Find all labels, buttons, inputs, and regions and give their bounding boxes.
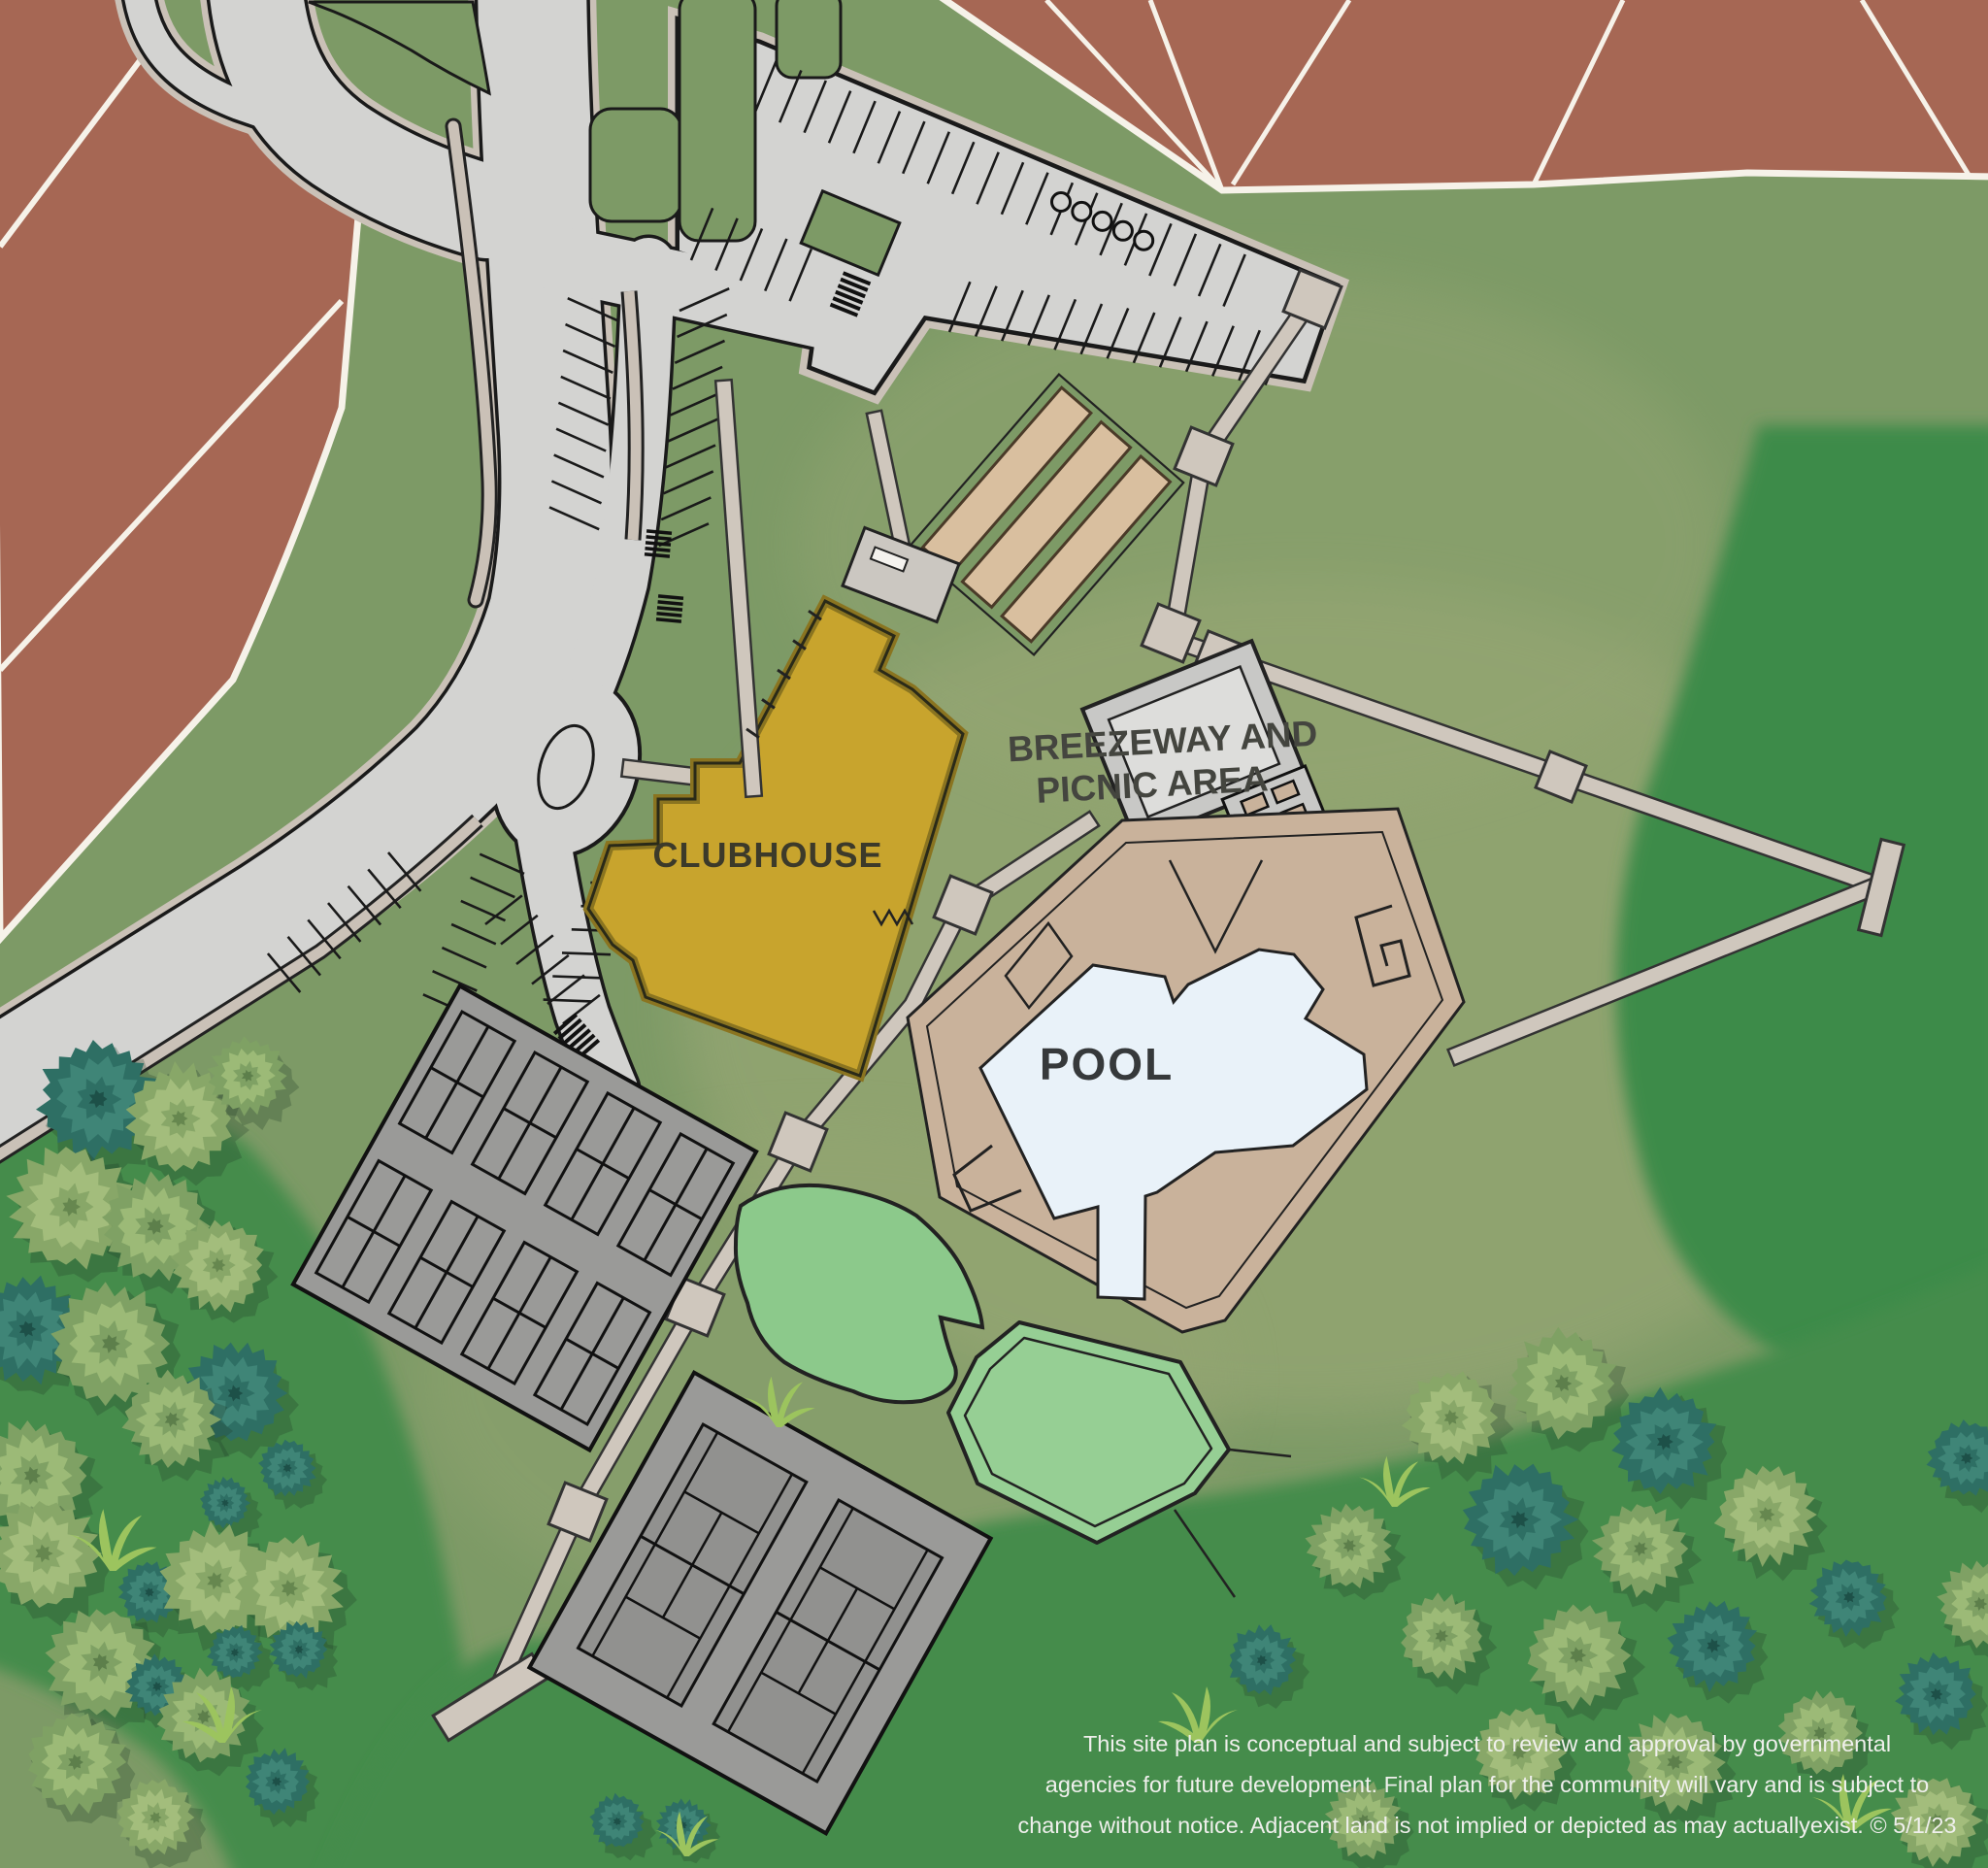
svg-text:CLUBHOUSE: CLUBHOUSE [652,835,882,875]
svg-text:agencies for future developmen: agencies for future development. Final p… [1045,1772,1929,1797]
svg-text:change without notice. Adjacen: change without notice. Adjacent land is … [1017,1813,1956,1838]
svg-text:This site plan is conceptual a: This site plan is conceptual and subject… [1083,1731,1891,1756]
svg-text:POOL: POOL [1040,1039,1174,1089]
